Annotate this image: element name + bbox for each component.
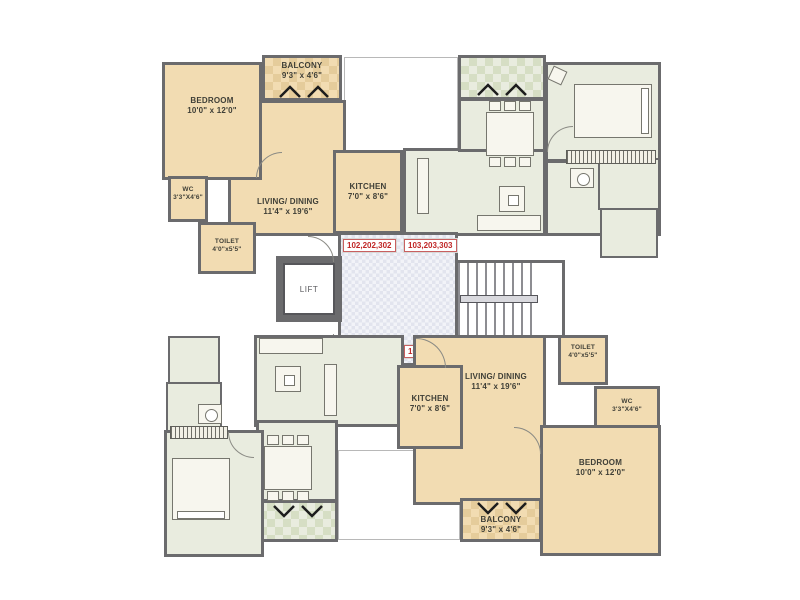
room-name: TOILET <box>556 344 610 352</box>
u103-sofa <box>477 215 541 231</box>
u103-chair <box>504 101 516 111</box>
u103-toilet <box>598 158 660 210</box>
unit-label-102: 102,202,302 <box>343 239 396 252</box>
u102-bedroom <box>162 62 262 180</box>
u102-balcony-window-icon <box>276 84 332 99</box>
u104-balcony-window-icon <box>474 501 530 516</box>
unit-label-103: 103,203,303 <box>404 239 457 252</box>
u101-wc <box>168 336 220 384</box>
room-name: WC <box>596 398 658 406</box>
u101-sofa <box>259 338 323 354</box>
u101-bed <box>172 458 230 520</box>
room-dims: 4'0"x5'5" <box>198 246 256 254</box>
room-dims: 7'0" x 8'6" <box>335 192 401 202</box>
lift: LIFT <box>283 263 335 315</box>
u101-chair <box>267 491 279 501</box>
u101-tv-unit <box>324 364 337 416</box>
room-dims: 10'0" x 12'0" <box>540 468 661 478</box>
u104-balcony-label: BALCONY 9'3" x 4'6" <box>460 515 542 536</box>
u101-dining-table <box>264 446 312 490</box>
u103-kitchen-platform <box>566 150 656 164</box>
u102-toilet-label: TOILET 4'0"x5'5" <box>198 238 256 254</box>
u103-bed <box>574 84 652 138</box>
u104-bedroom-label: BEDROOM 10'0" x 12'0" <box>540 458 661 479</box>
room-dims: 10'0" x 12'0" <box>162 106 262 116</box>
room-dims: 7'0" x 8'6" <box>399 404 461 414</box>
room-name: BEDROOM <box>540 458 661 468</box>
u101-chair <box>267 435 279 445</box>
u102-living-label: LIVING/ DINING 11'4" x 19'6" <box>238 197 338 218</box>
u103-chair <box>519 101 531 111</box>
room-name: WC <box>164 186 212 194</box>
u103-chair <box>489 157 501 167</box>
stair-handrail <box>460 295 538 303</box>
u101-balcony-window-icon <box>270 504 326 519</box>
room-name: KITCHEN <box>399 394 461 404</box>
room-dims: 9'3" x 4'6" <box>262 71 342 81</box>
floor-plan: BEDROOM 10'0" x 12'0" BALCONY 9'3" x 4'6… <box>0 0 800 600</box>
u103-chair <box>504 157 516 167</box>
u102-wc-label: WC 3'3"X4'6" <box>164 186 212 202</box>
u101-washbasin <box>198 404 222 424</box>
room-dims: 3'3"X4'6" <box>596 406 658 414</box>
u103-washbasin <box>570 168 594 188</box>
room-name: BEDROOM <box>162 96 262 106</box>
u103-tv-unit <box>417 158 429 214</box>
u101-kitchen-platform <box>170 426 228 439</box>
room-name: KITCHEN <box>335 182 401 192</box>
room-dims: 4'0"x5'5" <box>556 352 610 360</box>
u103-dining-table <box>486 112 534 156</box>
u103-wc <box>600 208 658 258</box>
u101-chair <box>297 435 309 445</box>
staircase <box>455 260 565 338</box>
room-name: BALCONY <box>460 515 542 525</box>
u104-kitchen-label: KITCHEN 7'0" x 8'6" <box>399 394 461 415</box>
u104-toilet-label: TOILET 4'0"x5'5" <box>556 344 610 360</box>
u103-chair <box>489 101 501 111</box>
u101-chair <box>282 435 294 445</box>
room-name: LIVING/ DINING <box>238 197 338 207</box>
room-name: BALCONY <box>262 61 342 71</box>
u103-coffee-table <box>499 186 525 212</box>
room-name: TOILET <box>198 238 256 246</box>
lift-label: LIFT <box>300 285 318 294</box>
u103-balcony-window-icon <box>474 82 530 97</box>
lift-shaft: LIFT <box>276 256 342 322</box>
u101-chair <box>282 491 294 501</box>
u102-kitchen-label: KITCHEN 7'0" x 8'6" <box>335 182 401 203</box>
lobby-door-upper <box>308 236 334 262</box>
u103-chair <box>519 157 531 167</box>
u104-living-label: LIVING/ DINING 11'4" x 19'6" <box>443 372 549 393</box>
u102-bedroom-label: BEDROOM 10'0" x 12'0" <box>162 96 262 117</box>
u104-wc-label: WC 3'3"X4'6" <box>596 398 658 414</box>
room-dims: 3'3"X4'6" <box>164 194 212 202</box>
room-dims: 11'4" x 19'6" <box>443 382 549 392</box>
u104-bedroom <box>540 425 661 556</box>
u102-balcony-label: BALCONY 9'3" x 4'6" <box>262 61 342 82</box>
room-dims: 11'4" x 19'6" <box>238 207 338 217</box>
u101-chair <box>297 491 309 501</box>
u101-coffee-table <box>275 366 301 392</box>
room-name: LIVING/ DINING <box>443 372 549 382</box>
room-dims: 9'3" x 4'6" <box>460 525 542 535</box>
